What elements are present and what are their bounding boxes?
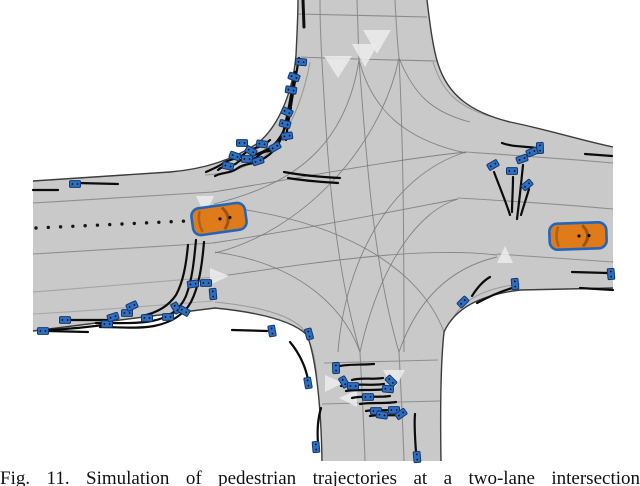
pedestrian-dot [62,319,64,321]
pedestrian-dot [109,323,111,325]
pedestrian [376,411,388,419]
pedestrian-body [163,314,174,321]
pedestrian-body [256,140,268,148]
pedestrian-body [312,441,320,453]
pedestrian-trajectory [303,0,304,27]
pedestrian-body [60,317,71,324]
pedestrian-dot [72,183,74,185]
pedestrian [237,140,248,147]
pedestrian-dot [144,317,146,319]
pedestrian [281,132,293,140]
pedestrian-dot [239,142,241,144]
pedestrian-body [607,268,615,280]
pedestrian-dot [165,316,167,318]
pedestrian-body [376,411,388,419]
center-dotted-line [59,225,62,228]
pedestrian [201,280,212,287]
pedestrian-body [507,168,518,175]
center-dotted-line [169,220,172,223]
center-dotted-line [157,221,160,224]
pedestrian-dot [129,312,131,314]
pedestrian-body [295,58,307,66]
pedestrian-trajectory [232,330,267,331]
pedestrian-body [413,451,421,463]
pedestrian-body [142,315,153,322]
pedestrian-body [363,394,374,401]
pedestrian [60,317,71,324]
pedestrian-body [70,181,81,188]
pedestrian [285,86,297,95]
pedestrian-body [268,325,277,337]
pedestrian-dot [104,323,106,325]
pedestrian-body [187,280,199,288]
pedestrian [295,58,307,66]
simulation-figure [0,0,640,466]
pedestrian-body [348,383,359,390]
pedestrian [70,181,81,188]
pedestrian-dot [124,312,126,314]
pedestrian-trajectory [415,414,416,452]
center-dotted-line [182,219,185,222]
pedestrian-dot [244,158,246,160]
center-dotted-line [71,225,74,228]
pedestrian-body [382,385,394,393]
road-edge [441,288,613,461]
center-dotted-line [96,223,99,226]
pedestrian [242,156,253,163]
pedestrian-body [511,278,519,290]
center-dotted-line [120,222,123,225]
pedestrian-dot [208,282,210,284]
pedestrian [142,315,153,322]
pedestrian-trajectory [572,272,608,273]
pedestrian [256,140,268,148]
pedestrian-dot [370,396,372,398]
pedestrian-dot [45,330,47,332]
pedestrian-trajectory [290,342,308,380]
pedestrian-body [38,328,49,335]
road-surface [33,0,613,461]
pedestrian [607,268,615,280]
pedestrian-dot [391,409,393,411]
center-dotted-line [34,226,37,229]
pedestrian [187,280,199,288]
pedestrian-dot [350,385,352,387]
pedestrian-trajectory [512,177,513,212]
pedestrian [163,314,174,321]
pedestrian [413,451,421,463]
pedestrian-body [209,288,217,300]
pedestrian-body [285,86,297,95]
pedestrian-dot [170,316,172,318]
pedestrian [507,168,518,175]
pedestrian-trajectory [48,331,88,332]
pedestrian [332,362,339,373]
pedestrian-dot [365,396,367,398]
pedestrian-dot [373,410,375,412]
pedestrian [382,385,394,393]
pedestrian [312,441,320,453]
center-dotted-line [133,222,136,225]
pedestrian-body [237,140,248,147]
pedestrian [209,288,217,300]
pedestrian-dot [249,158,251,160]
center-dotted-line [83,224,86,227]
pedestrian-body [332,362,339,373]
pedestrian [304,377,313,389]
pedestrian-body [281,132,293,140]
pedestrian-dot [67,319,69,321]
pedestrian-dot [355,385,357,387]
pedestrian-dot [509,170,511,172]
pedestrian-body [201,280,212,287]
pedestrian-dot [396,409,398,411]
pedestrian-dot [77,183,79,185]
pedestrian-dot [203,282,205,284]
pedestrian [38,328,49,335]
pedestrian-dot [514,170,516,172]
pedestrian [511,278,519,290]
figure-caption: Fig. 11. Simulation of pedestrian trajec… [0,469,640,486]
pedestrian-body [304,377,313,389]
pedestrian [268,325,277,337]
vehicle [549,221,607,251]
pedestrian-body [242,156,253,163]
pedestrian-trajectory [78,183,118,184]
pedestrian [348,383,359,390]
pedestrian-dot [149,317,151,319]
pedestrian [363,394,374,401]
center-dotted-line [47,226,50,229]
intersection-simulation-canvas [0,0,640,466]
pedestrian-dot [244,142,246,144]
pedestrian-dot [40,330,42,332]
center-dotted-line [145,221,148,224]
pedestrian-trajectory [360,402,396,404]
center-dotted-line [108,223,111,226]
